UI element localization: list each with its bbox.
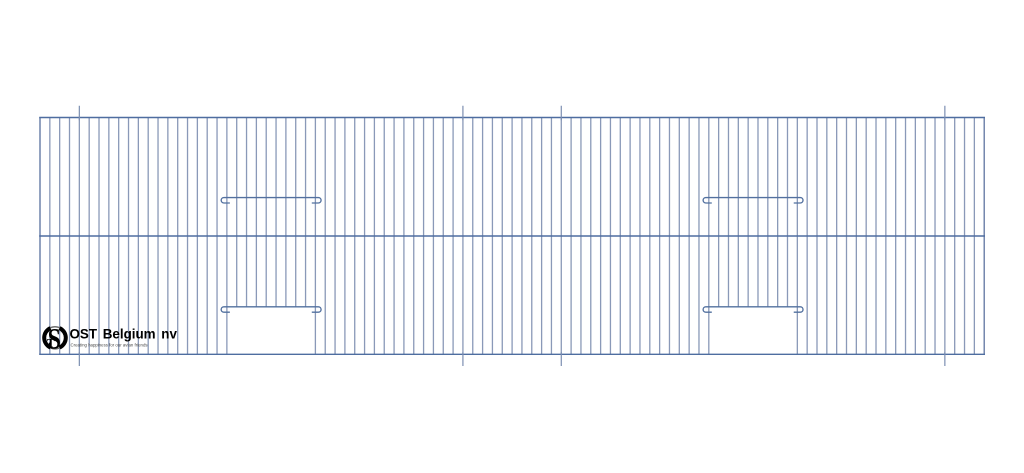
svg-text:S: S bbox=[48, 322, 61, 355]
svg-text:OST Belgium nv: OST Belgium nv bbox=[70, 327, 178, 342]
svg-text:Creating happiness for our avi: Creating happiness for our avian friends bbox=[71, 343, 149, 348]
